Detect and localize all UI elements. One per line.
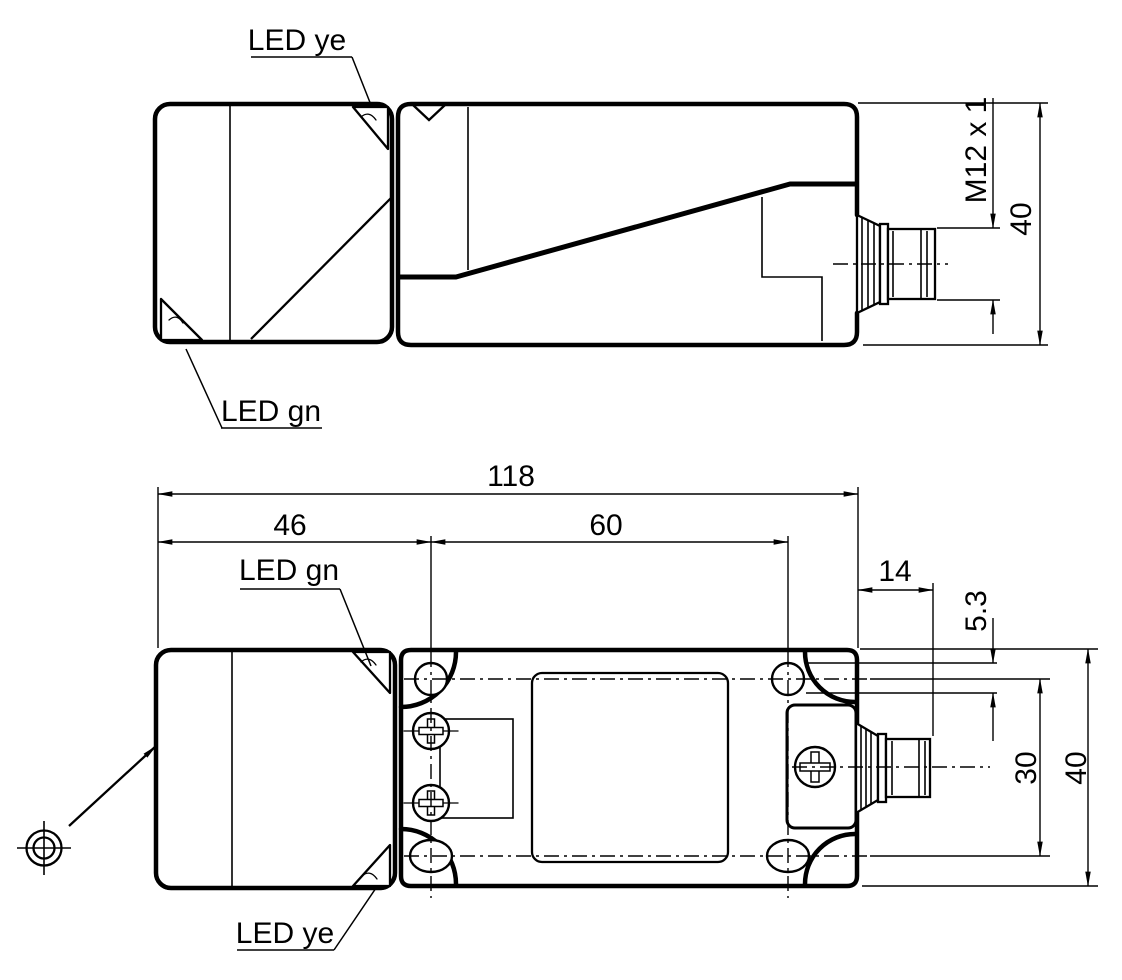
dim-body-width-text: 40 [1060,751,1093,784]
dim-hole-width-text: 5.3 [960,590,993,632]
dim-thread-text: M12 x 1 [960,97,993,204]
sensor-head-outline [155,104,392,342]
dim-overall-length-text: 118 [487,460,535,493]
connector-collar [878,734,886,802]
technical-drawing-page: 40 M12 x 1 LED ye LED gn [0,0,1122,980]
connector-bellows [856,723,878,813]
led-yellow-label: LED ye [236,917,334,950]
dim-height-text: 40 [1005,202,1038,235]
sensor-head-outline [156,650,395,888]
dim-connector-length-text: 14 [878,555,911,588]
led-yellow-label: LED ye [248,24,346,57]
led-green-label: LED gn [239,554,339,587]
top-view-head [156,650,395,888]
dim-head-length-text: 46 [273,509,306,542]
dim-hole-cross-spacing-text: 30 [1010,751,1043,784]
sensor-body-outline [398,104,857,345]
side-view-body [398,104,857,345]
side-view-head [155,104,392,342]
sensor-dimension-drawing: 40 M12 x 1 LED ye LED gn [0,0,1122,980]
led-green-label: LED gn [221,395,321,428]
dim-hole-spacing-text: 60 [589,509,622,542]
